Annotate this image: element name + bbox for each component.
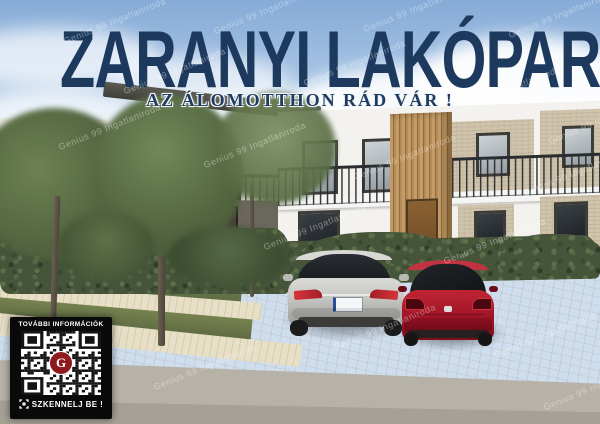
car-logo (444, 306, 452, 312)
car-wheel (404, 332, 418, 346)
car-taillight (294, 289, 323, 300)
balcony-railing (452, 153, 600, 198)
car-taillight (370, 289, 399, 300)
real-estate-poster: ZARANYI LAKÓPARK AZ ÁLOMOTTHON RÁD VÁR !… (0, 0, 600, 424)
car-wheel (478, 332, 492, 346)
qr-footer: SZKENNELJ BE ! (19, 399, 103, 409)
poster-title: ZARANYI LAKÓPARK (60, 20, 540, 101)
car-taillight (472, 298, 492, 310)
car-diffuser (298, 317, 394, 327)
car-silver (288, 250, 404, 336)
qr-panel: TOVÁBBI INFORMÁCIÓK G SZKENNELJ BE ! (10, 317, 112, 419)
car-mirror (398, 286, 407, 292)
car-taillight (405, 298, 425, 310)
car-mirror (283, 274, 293, 281)
car-mirror (489, 286, 498, 292)
scan-icon (19, 399, 29, 409)
qr-footer-label: SZKENNELJ BE ! (32, 400, 103, 409)
qr-header: TOVÁBBI INFORMÁCIÓK (18, 321, 103, 328)
car-lower-lip (408, 330, 488, 338)
bush (168, 226, 288, 288)
car-red (402, 260, 494, 346)
car-chrome-strip (322, 294, 370, 296)
brand-g-logo: G (49, 351, 73, 375)
qr-code: G (21, 331, 101, 395)
car-wheel (290, 320, 308, 336)
bush (58, 212, 154, 282)
poster-subtitle: AZ ÁLOMOTTHON RÁD VÁR ! (0, 90, 600, 111)
bush (500, 234, 600, 274)
car-hatch-line (412, 314, 484, 315)
